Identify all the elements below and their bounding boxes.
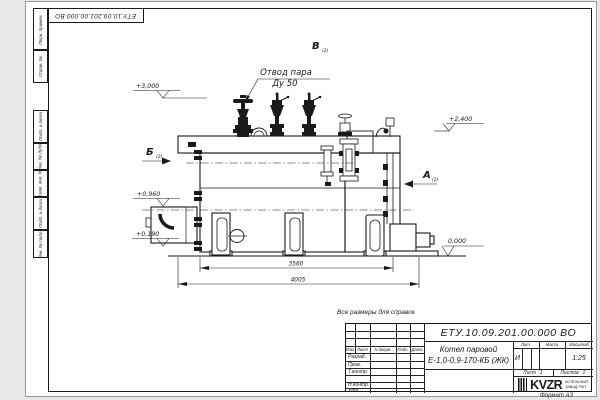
dimension-overall: 4005: [291, 278, 306, 284]
company-logo: KVZR КОТЕЛЬНЫЙ ЗАВОД РЭП: [513, 376, 593, 393]
row-utv: Утв.: [346, 388, 372, 393]
view-label-a-ref: (2): [432, 177, 439, 183]
safety-valve-1: [270, 93, 284, 137]
drawing-sheet: Перв. примен. Справ. № Подп. и дата Инв.…: [0, 0, 600, 400]
safety-valve-2: [302, 93, 316, 137]
view-label-b-ref: (2): [156, 154, 163, 160]
elevation-ground: 0,000: [448, 238, 466, 245]
centerlines: [142, 163, 414, 210]
col-header-doc: N докум.: [370, 346, 396, 353]
boiler-supports: [210, 213, 386, 256]
steam-outlet-valve: [233, 95, 253, 137]
logo-caption-line2: ЗАВОД РЭП: [565, 385, 588, 389]
view-label-a: А: [422, 170, 431, 181]
product-name-line1: Котел паровой: [440, 344, 497, 355]
row-razrab: Разраб.: [346, 353, 372, 361]
product-name: Котел паровой Е-1,0-0,9-170-КБ (ЖК): [424, 341, 513, 369]
col-header-izm: Изм.: [346, 346, 355, 353]
row-tkontr: Т.контр.: [346, 368, 372, 375]
sheets-label: Листов: [561, 370, 579, 376]
product-name-line2: Е-1,0-0,9-170-КБ (ЖК): [428, 355, 509, 366]
sheet-label: Лист: [523, 370, 536, 376]
elevation-burner: +0,960: [137, 191, 160, 198]
lit-value: И: [513, 348, 522, 369]
sheets-value: 2: [583, 370, 586, 376]
callout-dn50: Ду 50: [271, 79, 297, 89]
elevation-top: +3,000: [136, 83, 159, 90]
small-valve: [338, 114, 352, 136]
fan-unit: [386, 224, 438, 256]
mass-header: Масса: [539, 341, 565, 348]
scale-value: 1:25: [565, 348, 593, 369]
view-label-v: В: [312, 41, 320, 52]
sheet-number: Лист 1: [513, 369, 553, 376]
view-label-v-ref: (2): [322, 48, 329, 54]
dimension-inner: 3560: [289, 262, 304, 268]
sheet-value: 1: [540, 370, 543, 376]
col-header-podp: Подп.: [396, 346, 410, 353]
reference-note: Все размеры для справок: [337, 309, 415, 316]
water-gauges: [321, 139, 359, 186]
row-prov: Пров.: [346, 361, 372, 368]
title-block: Изм. Лист N докум. Подп. Дата Разраб. Пр…: [345, 323, 592, 392]
col-header-data: Дата: [410, 346, 424, 353]
sheets-total: Листов 2: [553, 369, 593, 376]
callout-steam-outlet: Отвод пара: [260, 68, 312, 78]
boiler-outline: [146, 93, 466, 257]
doc-number: ЕТУ.10.09.201.00.000 ВО: [424, 324, 593, 341]
lit-header: Лит.: [513, 341, 539, 348]
elevation-rear-top: +2,400: [449, 116, 472, 123]
view-label-b: Б: [146, 147, 154, 158]
logo-text: KVZR: [530, 378, 562, 392]
logo-barcode-icon: [518, 378, 527, 391]
col-header-list: Лист: [355, 346, 370, 353]
scale-header: Масштаб: [565, 341, 593, 348]
format-note: Формат А3: [540, 393, 573, 399]
logo-caption: КОТЕЛЬНЫЙ ЗАВОД РЭП: [565, 380, 588, 388]
elevation-low: +0,190: [136, 231, 159, 238]
